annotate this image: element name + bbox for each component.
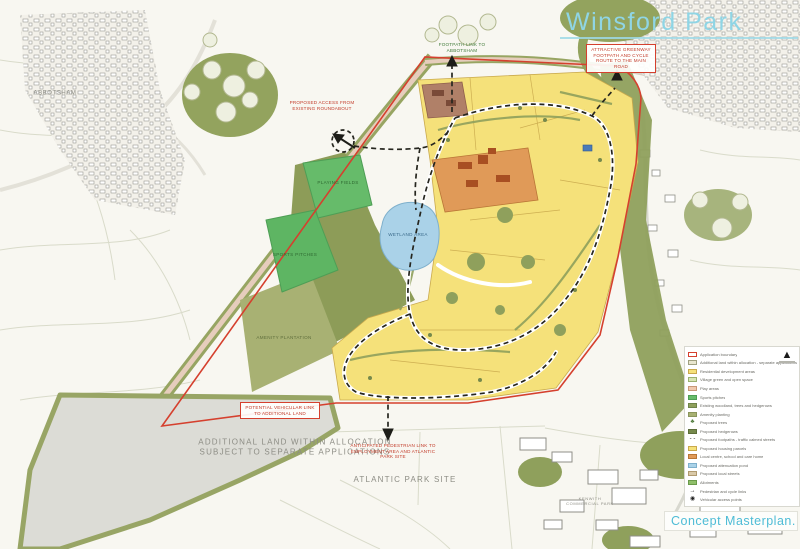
- access-point-icon: ◉: [688, 497, 697, 502]
- note-greenway: Attractive greenway footpath and cycle r…: [586, 44, 656, 73]
- legend-swatch: [688, 463, 697, 468]
- legend-row: - -Proposed footpaths - traffic calmed s…: [688, 435, 797, 444]
- legend-row: ♣Proposed trees: [688, 418, 797, 427]
- care-home-parcel: [422, 82, 468, 118]
- legend-row: →Pedestrian and cycle links: [688, 487, 797, 496]
- tree-icon: ♣: [688, 420, 697, 425]
- label-abbotsham: ABBOTSHAM: [33, 90, 76, 97]
- legend-swatch: [688, 386, 697, 391]
- legend-row: ◉Vehicular access points: [688, 495, 797, 504]
- legend-row: Proposed housing parcels: [688, 444, 797, 453]
- legend-swatch: [688, 429, 697, 434]
- note-vehicular-link: Potential vehicular link to additional l…: [240, 402, 320, 419]
- title-rule: [560, 37, 798, 39]
- legend-swatch: [688, 480, 697, 485]
- label-atlantic-park: ATLANTIC PARK SITE: [353, 475, 456, 485]
- label-playing-fields: PLAYING FIELDS: [317, 180, 358, 186]
- legend-row: Sports pitches: [688, 393, 797, 402]
- legend-swatch: [688, 352, 697, 357]
- masterplan-page: Winsford Park Concept Masterplan. ABBOTS…: [0, 0, 800, 549]
- note-roundabout-access: Proposed access from existing roundabout: [289, 100, 355, 111]
- legend-row: Play areas: [688, 384, 797, 393]
- note-footpath-abbotsham: Footpath link to Abbotsham: [433, 42, 491, 53]
- consultant-logo: ▲: [779, 350, 795, 363]
- legend-row: Proposed attenuation pond: [688, 461, 797, 470]
- mountain-logo-icon: ▲: [779, 350, 795, 360]
- page-title: Winsford Park: [566, 8, 742, 37]
- legend-row: Residential development areas: [688, 367, 797, 376]
- label-plantation: AMENITY PLANTATION: [256, 335, 311, 341]
- arrow-icon: →: [688, 489, 697, 494]
- legend-swatch: [688, 360, 697, 365]
- legend-row: Local centre, school and care home: [688, 453, 797, 462]
- legend-swatch: [688, 369, 697, 374]
- legend-swatch: [688, 412, 697, 417]
- plan-label-box: Concept Masterplan.: [664, 511, 798, 531]
- legend-row: Allotments: [688, 478, 797, 487]
- legend-swatch: [688, 454, 697, 459]
- note-pedestrian-link: Anticipated pedestrian link to employmen…: [350, 443, 436, 460]
- legend-row: Proposed local streets: [688, 470, 797, 479]
- legend-row: Amenity planting: [688, 410, 797, 419]
- legend-row: Existing woodland, trees and hedgerows: [688, 401, 797, 410]
- label-commercial-park: KENWITH COMMERCIAL PARK: [565, 497, 615, 507]
- legend-swatch: [688, 471, 697, 476]
- legend-swatch: [688, 403, 697, 408]
- legend-panel: Application boundary Additional land wit…: [684, 346, 800, 507]
- dashed-line-icon: - -: [688, 437, 697, 442]
- label-wetland: WETLAND AREA: [388, 232, 428, 238]
- plan-label: Concept Masterplan.: [671, 514, 796, 528]
- label-sports-pitches: SPORTS PITCHES: [273, 252, 317, 258]
- legend-swatch: [688, 446, 697, 451]
- legend-row: Proposed hedgerows: [688, 427, 797, 436]
- legend-row: Village green and open space: [688, 376, 797, 385]
- legend-swatch: [688, 395, 697, 400]
- map-canvas: [0, 0, 800, 549]
- legend-swatch: [688, 377, 697, 382]
